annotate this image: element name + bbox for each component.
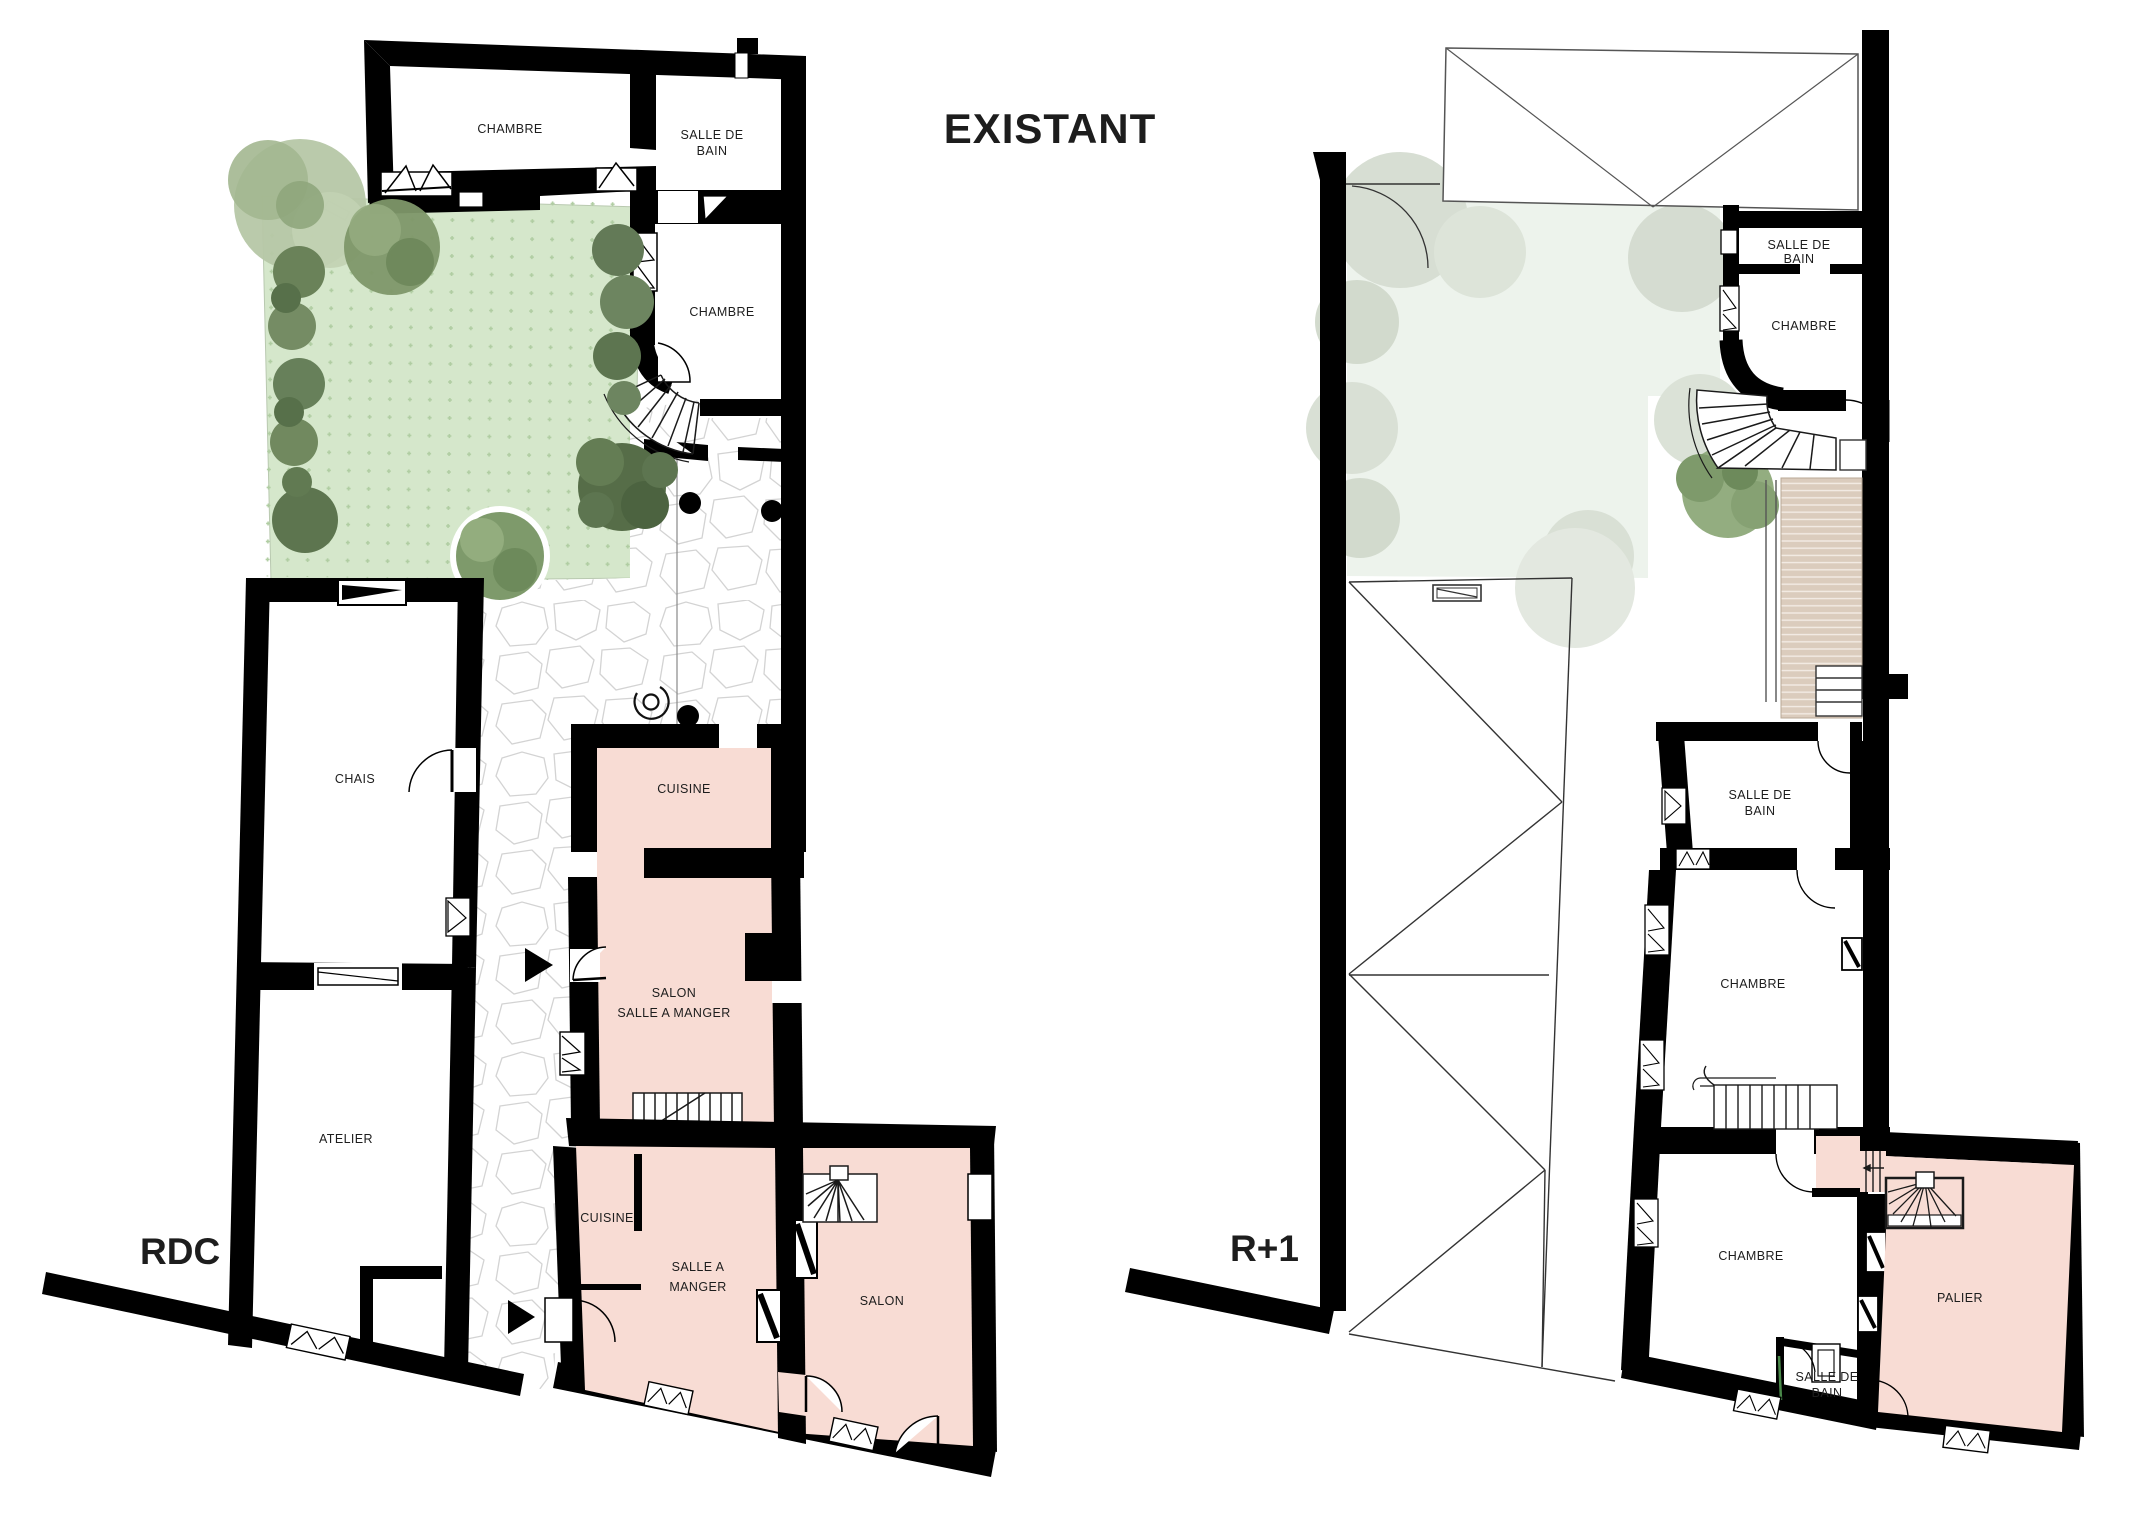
svg-text:CHAMBRE: CHAMBRE [477, 122, 542, 136]
svg-text:SALON: SALON [860, 1294, 904, 1308]
svg-text:SALLE A: SALLE A [672, 1260, 725, 1274]
svg-text:CUISINE: CUISINE [580, 1211, 634, 1225]
svg-text:SALLE DE: SALLE DE [1729, 788, 1792, 802]
svg-text:CHAIS: CHAIS [335, 772, 375, 786]
svg-text:MANGER: MANGER [669, 1280, 726, 1294]
svg-text:SALON: SALON [652, 986, 696, 1000]
svg-text:RDC: RDC [140, 1231, 220, 1272]
svg-text:BAIN: BAIN [1784, 252, 1815, 266]
svg-text:CUISINE: CUISINE [657, 782, 711, 796]
svg-text:BAIN: BAIN [1812, 1386, 1843, 1400]
svg-text:R+1: R+1 [1230, 1228, 1299, 1269]
svg-text:ATELIER: ATELIER [319, 1132, 373, 1146]
svg-text:CHAMBRE: CHAMBRE [1718, 1249, 1783, 1263]
svg-text:CHAMBRE: CHAMBRE [689, 305, 754, 319]
svg-text:SALLE DE: SALLE DE [1768, 238, 1831, 252]
svg-text:EXISTANT: EXISTANT [944, 105, 1157, 152]
svg-text:SALLE A MANGER: SALLE A MANGER [617, 1006, 730, 1020]
svg-text:CHAMBRE: CHAMBRE [1720, 977, 1785, 991]
svg-text:BAIN: BAIN [1745, 804, 1776, 818]
svg-text:SALLE DE: SALLE DE [1796, 1370, 1859, 1384]
svg-text:PALIER: PALIER [1937, 1291, 1983, 1305]
svg-text:CHAMBRE: CHAMBRE [1771, 319, 1836, 333]
svg-text:BAIN: BAIN [697, 144, 728, 158]
svg-text:SALLE DE: SALLE DE [681, 128, 744, 142]
